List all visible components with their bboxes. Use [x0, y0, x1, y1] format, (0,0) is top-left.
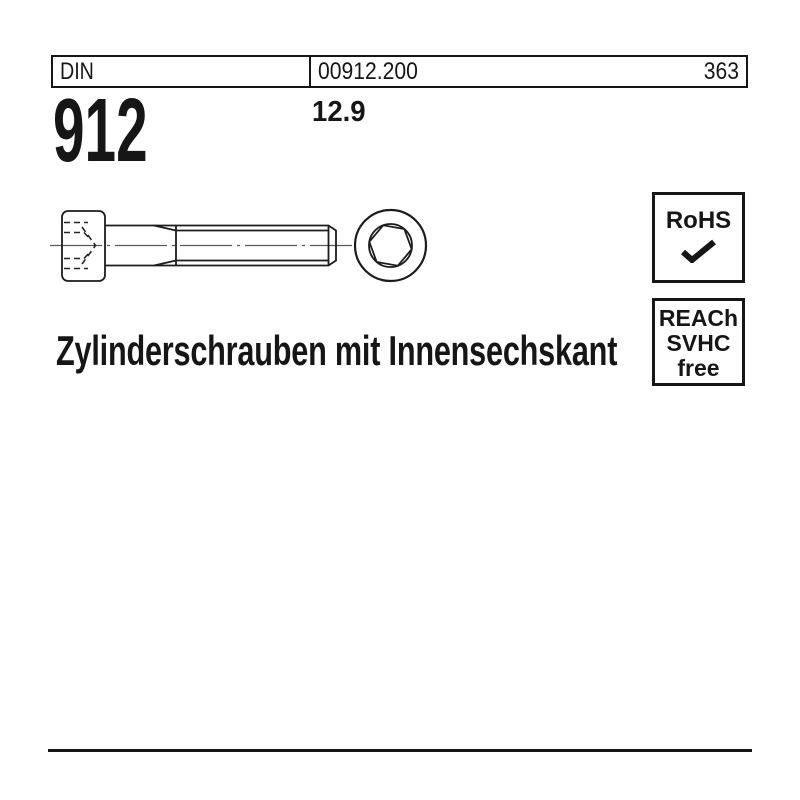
- reach-badge: REACh SVHC free: [652, 298, 745, 386]
- reach-line-1: REACh: [655, 306, 742, 331]
- standard-label: DIN: [60, 60, 94, 84]
- hidden-socket-lines: [64, 223, 96, 269]
- screw-end-view: [355, 210, 426, 281]
- catalog-page: DIN 00912.200 363 912 12.9: [0, 0, 800, 800]
- bottom-rule: [48, 749, 752, 752]
- rohs-label: RoHS: [655, 209, 742, 233]
- strength-class: 12.9: [312, 98, 366, 127]
- thread-minor-lines: [176, 231, 329, 261]
- catalog-number: 00912.200: [318, 60, 418, 84]
- page-number: 363: [704, 60, 739, 84]
- rohs-badge: RoHS: [652, 192, 745, 283]
- standard-number: 912: [53, 86, 148, 176]
- hex-socket: [369, 225, 411, 265]
- page-title: Zylinderschrauben mit Innensechskant: [56, 330, 617, 372]
- header-cell-numbers: 00912.200 363: [311, 57, 746, 86]
- thread-runout-lines: [154, 226, 176, 266]
- reach-line-3: free: [655, 356, 742, 381]
- header-box: DIN 00912.200 363: [51, 55, 748, 88]
- socket-cone-chevron: [82, 227, 96, 264]
- reach-line-2: SVHC: [655, 331, 742, 356]
- screw-head: [62, 211, 105, 281]
- head-outline-circle: [355, 210, 426, 281]
- rohs-check-icon: [679, 239, 719, 263]
- socket-circle: [369, 224, 412, 267]
- screw-shank-outline: [105, 226, 336, 266]
- screw-side-view: [62, 211, 336, 281]
